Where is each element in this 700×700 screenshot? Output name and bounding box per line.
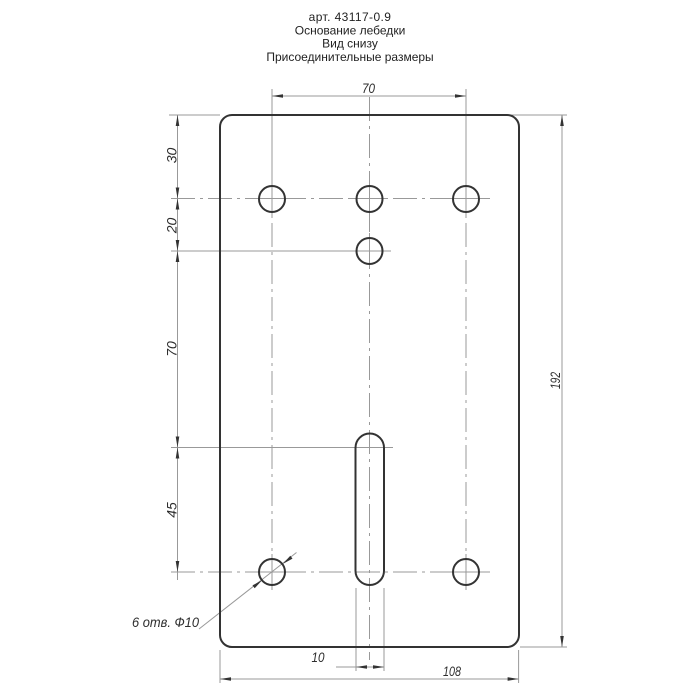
svg-text:Основание лебедки: Основание лебедки xyxy=(295,24,406,38)
svg-text:70: 70 xyxy=(165,341,181,357)
svg-text:45: 45 xyxy=(165,502,181,518)
svg-text:Вид снизу: Вид снизу xyxy=(322,37,378,51)
svg-text:70: 70 xyxy=(362,81,375,96)
svg-text:20: 20 xyxy=(165,218,181,235)
svg-text:192: 192 xyxy=(548,372,563,389)
svg-text:108: 108 xyxy=(443,664,461,679)
svg-text:30: 30 xyxy=(165,148,181,164)
svg-text:арт. 43117-0.9: арт. 43117-0.9 xyxy=(309,10,392,24)
svg-text:Присоединительные размеры: Присоединительные размеры xyxy=(266,50,433,64)
svg-text:6 отв. Ф10: 6 отв. Ф10 xyxy=(132,615,199,630)
svg-text:10: 10 xyxy=(312,650,325,665)
